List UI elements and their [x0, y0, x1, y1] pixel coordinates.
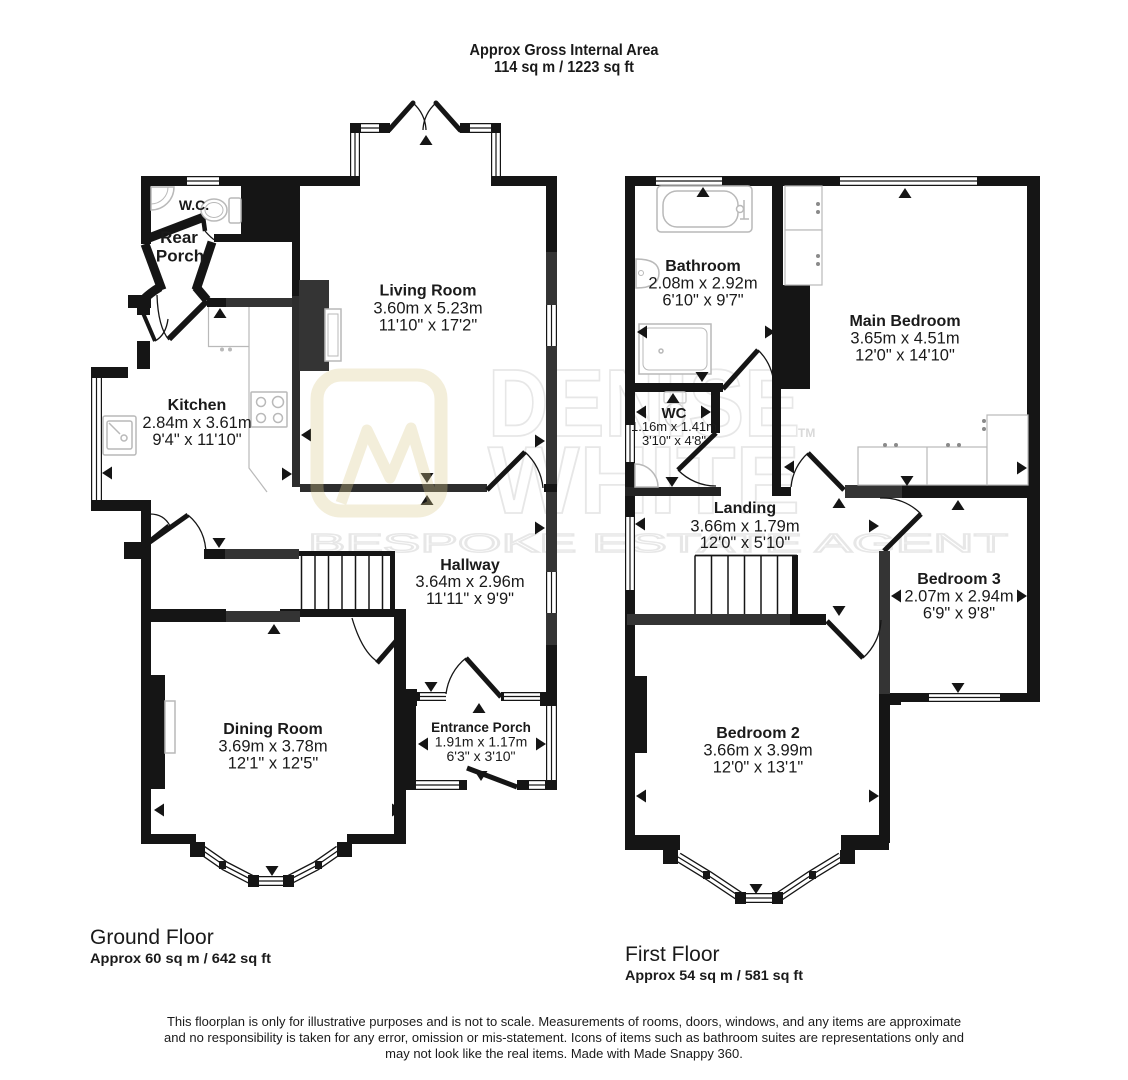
svg-text:Porch: Porch: [156, 247, 204, 266]
svg-text:114 sq m / 1223 sq ft: 114 sq m / 1223 sq ft: [494, 59, 635, 76]
svg-text:Landing: Landing: [714, 500, 776, 517]
svg-text:1.16m x 1.41m: 1.16m x 1.41m: [631, 419, 717, 434]
svg-text:2.07m x 2.94m: 2.07m x 2.94m: [904, 588, 1013, 606]
svg-text:Approx 54 sq m / 581 sq ft: Approx 54 sq m / 581 sq ft: [625, 967, 803, 983]
svg-text:First Floor: First Floor: [625, 943, 720, 966]
svg-text:Approx Gross Internal Area: Approx Gross Internal Area: [470, 42, 659, 59]
svg-text:6'9" x 9'8": 6'9" x 9'8": [923, 605, 995, 623]
svg-text:2.84m x 3.61m: 2.84m x 3.61m: [142, 414, 251, 432]
svg-text:9'4" x 11'10": 9'4" x 11'10": [152, 431, 241, 449]
svg-text:3.65m x 4.51m: 3.65m x 4.51m: [850, 330, 959, 348]
svg-text:Hallway: Hallway: [440, 557, 500, 574]
svg-text:Kitchen: Kitchen: [168, 397, 227, 414]
svg-text:6'3" x 3'10": 6'3" x 3'10": [447, 748, 516, 764]
svg-text:3.66m x 1.79m: 3.66m x 1.79m: [690, 518, 799, 536]
svg-text:W.C.: W.C.: [179, 197, 209, 213]
svg-text:12'0" x 5'10": 12'0" x 5'10": [700, 534, 791, 552]
svg-text:Main Bedroom: Main Bedroom: [849, 313, 960, 330]
svg-text:Bedroom 2: Bedroom 2: [716, 725, 800, 742]
svg-text:12'0" x 13'1": 12'0" x 13'1": [713, 759, 804, 777]
svg-text:This floorplan is only for ill: This floorplan is only for illustrative …: [167, 1014, 961, 1029]
svg-text:11'10" x 17'2": 11'10" x 17'2": [379, 317, 478, 335]
svg-text:Dining Room: Dining Room: [223, 721, 323, 738]
svg-text:3.66m x 3.99m: 3.66m x 3.99m: [703, 742, 812, 760]
svg-text:3.69m x 3.78m: 3.69m x 3.78m: [218, 738, 327, 756]
svg-text:may not look like the real ite: may not look like the real items. Made w…: [385, 1046, 743, 1061]
svg-text:Living Room: Living Room: [380, 283, 477, 300]
svg-text:Ground Floor: Ground Floor: [90, 926, 214, 949]
svg-text:and no responsibility is taken: and no responsibility is taken for any e…: [164, 1030, 964, 1045]
svg-text:3.60m x 5.23m: 3.60m x 5.23m: [373, 300, 482, 318]
svg-text:12'1" x 12'5": 12'1" x 12'5": [228, 755, 319, 773]
svg-text:Bathroom: Bathroom: [665, 258, 741, 275]
svg-text:3'10" x 4'8": 3'10" x 4'8": [642, 433, 706, 448]
svg-text:2.08m x 2.92m: 2.08m x 2.92m: [648, 275, 757, 293]
svg-text:11'11" x 9'9": 11'11" x 9'9": [426, 590, 514, 608]
svg-text:TM: TM: [798, 426, 815, 440]
svg-text:Rear: Rear: [160, 228, 198, 247]
svg-text:6'10" x 9'7": 6'10" x 9'7": [662, 292, 743, 310]
svg-text:Bedroom 3: Bedroom 3: [917, 571, 1001, 588]
svg-text:3.64m x 2.96m: 3.64m x 2.96m: [415, 573, 524, 591]
svg-text:Approx 60 sq m / 642 sq ft: Approx 60 sq m / 642 sq ft: [90, 950, 271, 966]
svg-text:12'0" x 14'10": 12'0" x 14'10": [855, 347, 955, 365]
